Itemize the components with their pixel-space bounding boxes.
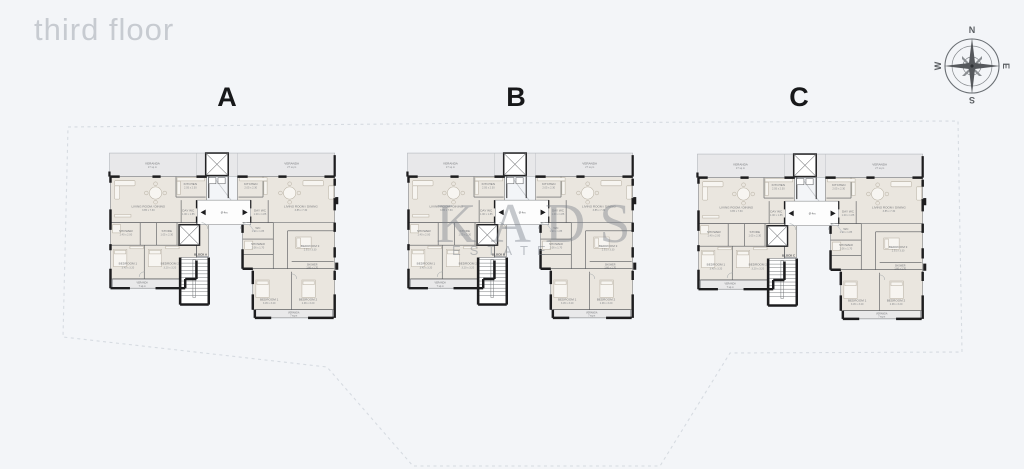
floorplan-block-b: BLOCK B	[397, 151, 637, 323]
floorplan-block-a: BLOCK A	[99, 151, 339, 323]
compass-east-label: E	[1001, 63, 1011, 69]
compass-west-label: W	[933, 61, 943, 70]
compass-star	[944, 38, 1000, 94]
block-c-caption: BLOCK C	[782, 253, 795, 257]
block-a-caption: BLOCK A	[194, 252, 207, 256]
compass-north-label: N	[969, 25, 976, 35]
compass-south-label: S	[969, 95, 975, 105]
block-b-caption: BLOCK B	[492, 252, 505, 256]
floorplan-block-c: BLOCK C	[687, 152, 927, 324]
compass-rose: N W E S	[930, 22, 1014, 106]
